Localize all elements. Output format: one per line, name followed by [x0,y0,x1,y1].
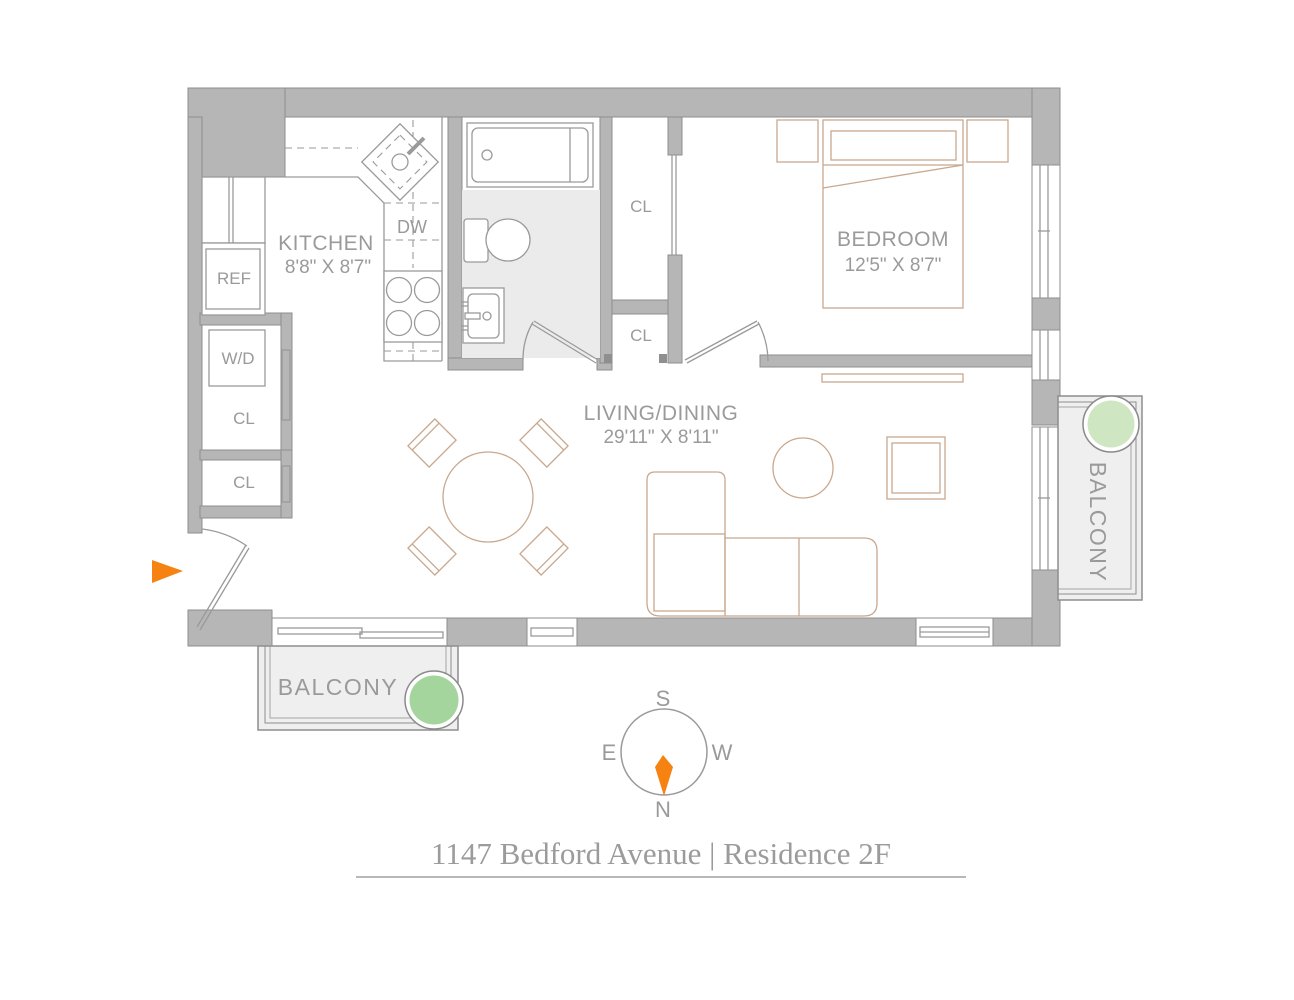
closet-label: CL [233,473,255,492]
cabinet [202,177,265,243]
compass-north: N [655,797,671,822]
balcony-bottom: BALCONY [258,646,463,730]
living-dining-dims: 29'11" X 8'11" [603,427,718,448]
plant-icon [405,671,463,729]
bedroom-dims: 12'5" X 8'7" [845,255,942,276]
window-bedroom-right [1032,165,1060,298]
closet-label: CL [630,197,652,216]
sofa [647,472,877,616]
balcony-right-label: BALCONY [1085,462,1111,582]
floor-plan: BALCONY BALCONY [0,0,1294,1000]
balcony-right: BALCONY [1058,396,1142,600]
bed [823,120,963,308]
refrigerator-label: REF [217,269,251,288]
entry-arrow-icon [152,560,183,583]
window-living-right [1032,427,1060,570]
washer-dryer-label: W/D [221,349,254,368]
dining-chair [520,419,568,467]
nightstand [777,120,818,162]
bedroom: BEDROOM 12'5" X 8'7" [685,120,1008,363]
living-dining-name: LIVING/DINING [584,402,739,425]
compass-needle-icon [655,755,673,796]
closet-label: CL [233,409,255,428]
compass-west: W [712,740,733,765]
dining-table [443,452,533,542]
kitchen-name: KITCHEN [278,232,374,255]
compass-east: E [602,740,617,765]
compass: S E W N [602,686,733,822]
living-dining: LIVING/DINING 29'11" X 8'11" [408,374,963,616]
dining-chair [408,527,456,575]
plant-icon [1083,396,1139,452]
armchair [887,437,945,499]
dining-set [408,419,568,575]
balcony-bottom-label: BALCONY [278,674,398,700]
bathroom [461,123,600,363]
window-bedroom-right-2 [1032,330,1060,380]
nightstand [967,120,1008,162]
window-bottom-right [916,618,993,646]
coffee-table [773,438,833,498]
compass-south: S [656,686,671,711]
dining-chair [520,527,568,575]
kitchen-sink-icon [362,124,438,200]
window-bottom-mid [527,618,577,646]
closet-label: CL [630,326,652,345]
page-title: 1147 Bedford Avenue | Residence 2F [431,836,891,871]
balcony-door-window [272,618,447,646]
floor-plan-page: BALCONY BALCONY [0,0,1294,1000]
dishwasher-label: DW [397,217,427,237]
bathtub-icon [467,123,593,187]
bedroom-door [685,321,768,363]
toilet-icon [464,219,530,262]
bathroom-sink-icon [461,288,504,343]
kitchen-dims: 8'8" X 8'7" [285,257,371,278]
media-console [822,374,963,382]
dining-chair [408,419,456,467]
bedroom-name: BEDROOM [837,228,949,251]
stove-icon [384,271,442,342]
